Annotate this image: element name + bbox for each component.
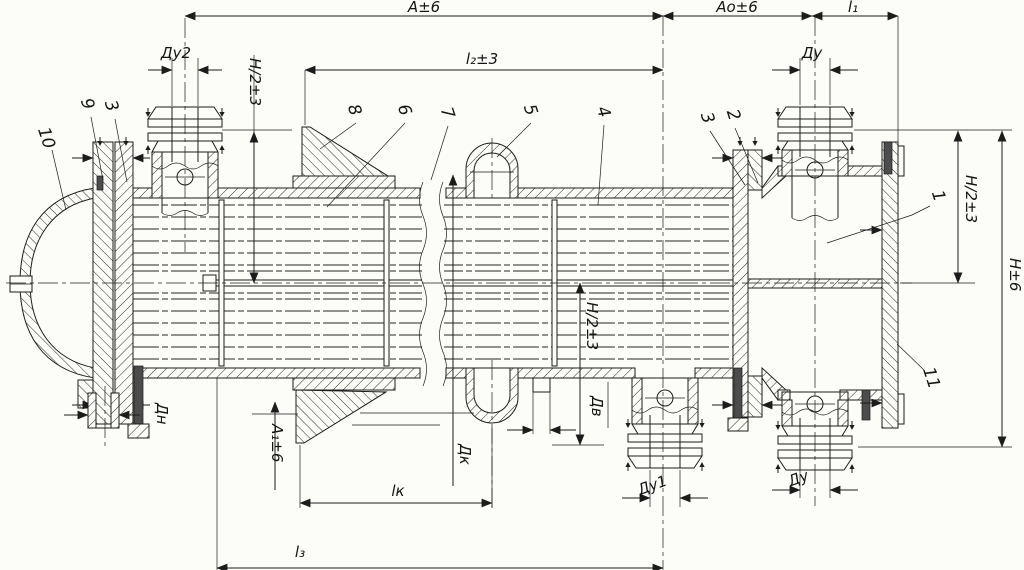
dim-l2-label: l₂±3	[466, 50, 498, 68]
dim-dv-label: Дв	[588, 395, 606, 417]
dim-h2-left-label: Н/2±3	[246, 58, 264, 106]
dim-h2-right-label: Н/2±3	[962, 175, 980, 223]
heat-exchanger-drawing: А±6 Ао±6 l₁ l₂±3 Ду2 Ду Н/2±3 Н/2±3 Н/2±…	[0, 0, 1024, 570]
drawing-page: А±6 Ао±6 l₁ l₂±3 Ду2 Ду Н/2±3 Н/2±3 Н/2±…	[0, 0, 1024, 570]
dim-lk-label: lк	[391, 482, 404, 500]
flat-cover	[882, 142, 898, 428]
dim-dk-label: Дк	[456, 443, 474, 465]
chamber-flange-bottom	[748, 376, 762, 417]
dim-du-top-right-label: Ду	[801, 44, 824, 62]
chamber-flange-top	[748, 150, 762, 190]
dim-dn-label: Дн	[153, 402, 171, 425]
dim-a1-label: А₁±6	[268, 423, 286, 462]
dim-ao-label: Ао±6	[715, 0, 758, 16]
dim-l1-label: l₁	[848, 0, 858, 16]
stud-nut	[128, 424, 149, 438]
dim-a-label: А±6	[407, 0, 440, 16]
dim-h-label: Н±6	[1006, 258, 1024, 291]
dim-h2-mid-label: Н/2±3	[583, 302, 601, 350]
dim-du2-label: Ду2	[160, 44, 191, 62]
dim-l3-label: l₃	[295, 543, 305, 561]
